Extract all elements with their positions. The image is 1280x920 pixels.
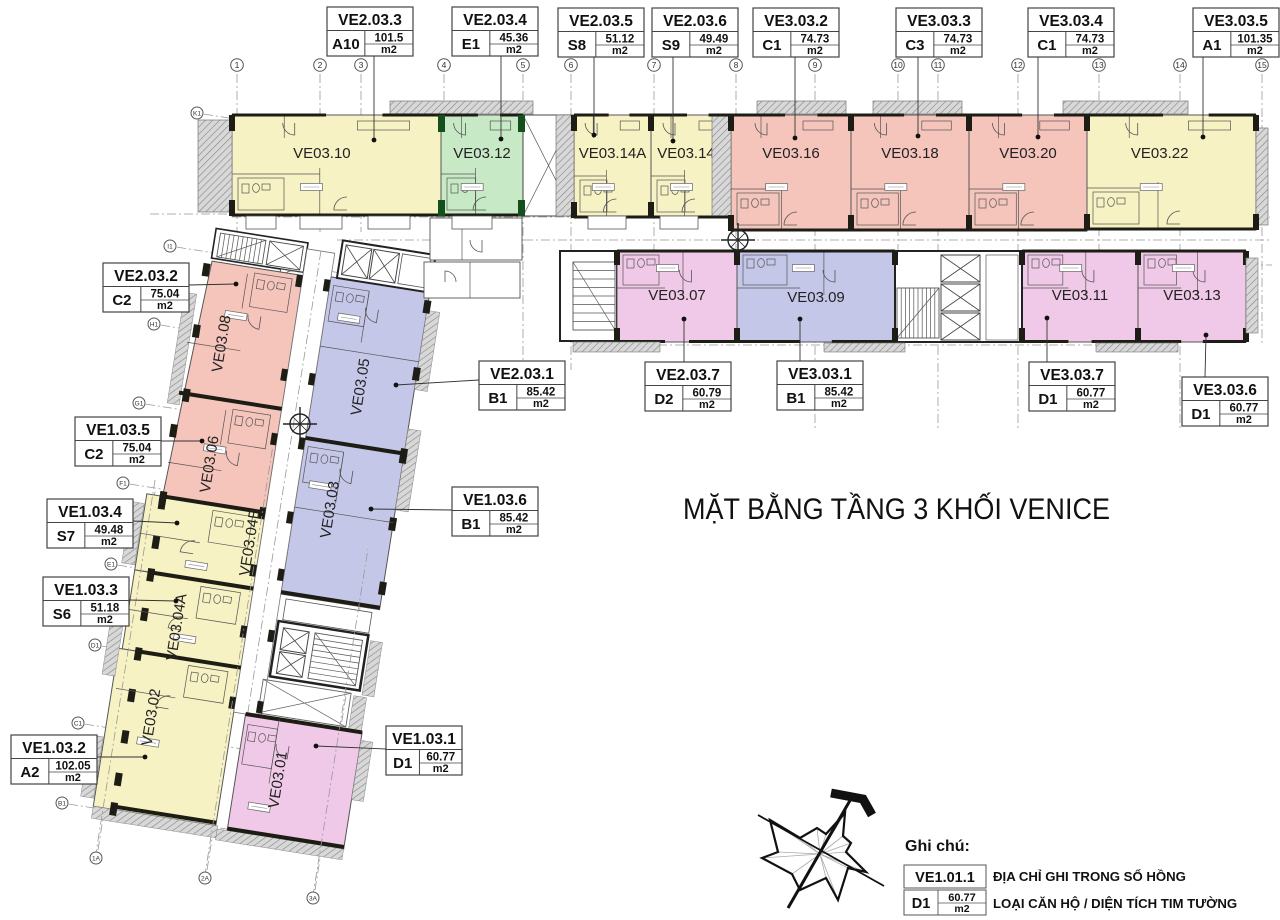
svg-text:I1: I1 [167, 243, 173, 250]
svg-text:VE1.01.1: VE1.01.1 [915, 870, 975, 886]
svg-text:60.77: 60.77 [1230, 403, 1259, 415]
svg-text:1: 1 [235, 60, 240, 70]
svg-text:15: 15 [1257, 60, 1267, 70]
svg-text:m2: m2 [97, 614, 113, 626]
svg-text:S9: S9 [662, 37, 680, 54]
svg-text:A2: A2 [20, 764, 39, 781]
svg-text:45.36: 45.36 [500, 33, 529, 45]
svg-text:C2: C2 [112, 292, 131, 309]
svg-text:m2: m2 [1083, 399, 1099, 411]
svg-text:85.42: 85.42 [527, 387, 556, 399]
svg-text:14: 14 [1175, 60, 1185, 70]
svg-text:60.77: 60.77 [1077, 388, 1106, 400]
svg-text:m2: m2 [1082, 45, 1098, 57]
svg-text:m2: m2 [101, 536, 117, 548]
svg-text:A10: A10 [332, 36, 360, 53]
svg-text:VE03.18: VE03.18 [881, 145, 939, 162]
svg-text:VE1.03.6: VE1.03.6 [463, 492, 527, 509]
svg-text:m2: m2 [533, 398, 549, 410]
svg-text:74.73: 74.73 [801, 34, 830, 46]
svg-text:G1: G1 [135, 400, 144, 407]
svg-text:K1: K1 [193, 110, 201, 117]
svg-text:4: 4 [442, 60, 447, 70]
svg-text:m2: m2 [706, 45, 722, 57]
svg-text:F1: F1 [119, 480, 127, 487]
svg-text:VE2.03.1: VE2.03.1 [490, 366, 554, 383]
svg-text:S8: S8 [568, 37, 586, 54]
svg-text:A1: A1 [1202, 37, 1221, 54]
svg-text:m2: m2 [1236, 414, 1252, 426]
svg-text:10: 10 [893, 60, 903, 70]
svg-text:8: 8 [734, 60, 739, 70]
svg-text:m2: m2 [954, 903, 969, 915]
svg-text:S7: S7 [57, 528, 75, 545]
svg-text:12: 12 [1013, 60, 1023, 70]
svg-text:m2: m2 [129, 454, 145, 466]
svg-text:VE3.03.4: VE3.03.4 [1039, 13, 1103, 30]
svg-text:D1: D1 [1038, 391, 1057, 408]
svg-text:m2: m2 [1247, 45, 1263, 57]
svg-text:MẶT BẰNG TẦNG 3 KHỐI VENICE: MẶT BẰNG TẦNG 3 KHỐI VENICE [683, 492, 1110, 526]
svg-text:9: 9 [813, 60, 818, 70]
svg-text:5: 5 [521, 60, 526, 70]
svg-text:D1: D1 [912, 896, 931, 912]
svg-text:m2: m2 [831, 398, 847, 410]
svg-text:60.79: 60.79 [693, 388, 722, 400]
svg-text:74.73: 74.73 [944, 34, 973, 46]
svg-text:VE3.03.3: VE3.03.3 [907, 13, 971, 30]
svg-text:3: 3 [359, 60, 364, 70]
svg-text:VE2.03.2: VE2.03.2 [114, 268, 178, 285]
svg-text:VE1.03.2: VE1.03.2 [22, 740, 86, 757]
svg-text:51.12: 51.12 [606, 34, 635, 46]
svg-text:B1: B1 [488, 390, 507, 407]
svg-text:VE3.03.7: VE3.03.7 [1040, 367, 1104, 384]
svg-text:74.73: 74.73 [1076, 34, 1105, 46]
svg-text:VE03.10: VE03.10 [293, 145, 351, 162]
svg-text:VE1.03.3: VE1.03.3 [54, 582, 118, 599]
svg-text:LOẠI CĂN HỘ / DIỆN TÍCH TIM TƯ: LOẠI CĂN HỘ / DIỆN TÍCH TIM TƯỜNG [993, 896, 1237, 911]
svg-text:60.77: 60.77 [426, 752, 455, 764]
svg-text:E1: E1 [462, 36, 480, 53]
svg-text:B1: B1 [786, 390, 805, 407]
svg-text:B1: B1 [58, 800, 66, 807]
svg-text:VE2.03.6: VE2.03.6 [663, 13, 727, 30]
svg-text:m2: m2 [950, 45, 966, 57]
svg-text:VE1.03.5: VE1.03.5 [86, 422, 150, 439]
svg-text:E1: E1 [107, 561, 115, 568]
svg-text:D1: D1 [393, 755, 412, 772]
svg-text:VE3.03.6: VE3.03.6 [1193, 382, 1257, 399]
svg-text:VE03.22: VE03.22 [1131, 145, 1189, 162]
svg-text:VE1.03.1: VE1.03.1 [392, 731, 456, 748]
svg-text:VE03.16: VE03.16 [762, 145, 820, 162]
svg-text:75.04: 75.04 [123, 443, 152, 455]
svg-text:3A: 3A [309, 895, 318, 902]
svg-text:85.42: 85.42 [500, 513, 529, 525]
svg-text:85.42: 85.42 [825, 387, 854, 399]
svg-text:m2: m2 [157, 300, 173, 312]
svg-text:m2: m2 [65, 772, 81, 784]
svg-text:101.5: 101.5 [375, 33, 404, 45]
svg-text:m2: m2 [699, 399, 715, 411]
svg-text:49.48: 49.48 [95, 525, 124, 537]
svg-text:m2: m2 [506, 44, 522, 56]
svg-text:7: 7 [652, 60, 657, 70]
svg-text:49.49: 49.49 [700, 34, 729, 46]
svg-text:VE03.09: VE03.09 [787, 289, 845, 306]
svg-text:13: 13 [1094, 60, 1104, 70]
svg-text:VE03.12: VE03.12 [453, 145, 511, 162]
svg-text:D1: D1 [1191, 406, 1210, 423]
svg-text:VE3.03.5: VE3.03.5 [1204, 13, 1268, 30]
svg-text:11: 11 [934, 60, 943, 70]
svg-text:VE2.03.7: VE2.03.7 [656, 367, 720, 384]
svg-text:VE03.13: VE03.13 [1163, 287, 1221, 304]
svg-text:B1: B1 [461, 516, 480, 533]
svg-text:VE03.14A: VE03.14A [579, 145, 647, 162]
svg-text:VE3.03.2: VE3.03.2 [764, 13, 828, 30]
svg-text:m2: m2 [807, 45, 823, 57]
svg-text:D1: D1 [91, 642, 100, 649]
svg-text:VE03.20: VE03.20 [999, 145, 1057, 162]
svg-text:m2: m2 [433, 763, 449, 775]
svg-text:101.35: 101.35 [1237, 34, 1273, 46]
svg-text:C3: C3 [905, 37, 924, 54]
svg-text:C1: C1 [1037, 37, 1056, 54]
svg-text:102.05: 102.05 [55, 761, 91, 773]
svg-text:2A: 2A [201, 875, 210, 882]
svg-text:S6: S6 [53, 606, 71, 623]
svg-text:51.18: 51.18 [91, 603, 120, 615]
svg-text:VE03.11: VE03.11 [1052, 287, 1108, 304]
svg-text:1A: 1A [92, 855, 101, 862]
svg-text:VE2.03.3: VE2.03.3 [338, 12, 402, 29]
svg-text:ĐỊA CHỈ GHI TRONG SỔ HỒNG: ĐỊA CHỈ GHI TRONG SỔ HỒNG [993, 869, 1186, 884]
svg-text:C2: C2 [84, 446, 103, 463]
svg-text:m2: m2 [381, 44, 397, 56]
svg-text:2: 2 [318, 60, 323, 70]
svg-text:H1: H1 [150, 321, 159, 328]
svg-text:Ghi chú:: Ghi chú: [905, 838, 970, 855]
svg-text:C1: C1 [762, 37, 781, 54]
svg-text:VE3.03.1: VE3.03.1 [788, 366, 852, 383]
svg-text:C1: C1 [74, 720, 83, 727]
svg-text:75.04: 75.04 [151, 289, 180, 301]
svg-text:VE2.03.5: VE2.03.5 [569, 13, 633, 30]
svg-text:6: 6 [569, 60, 574, 70]
svg-text:VE03.07: VE03.07 [648, 287, 706, 304]
svg-text:m2: m2 [612, 45, 628, 57]
svg-text:D2: D2 [654, 391, 673, 408]
svg-text:VE1.03.4: VE1.03.4 [58, 504, 122, 521]
svg-text:m2: m2 [506, 524, 522, 536]
svg-text:VE2.03.4: VE2.03.4 [463, 12, 527, 29]
